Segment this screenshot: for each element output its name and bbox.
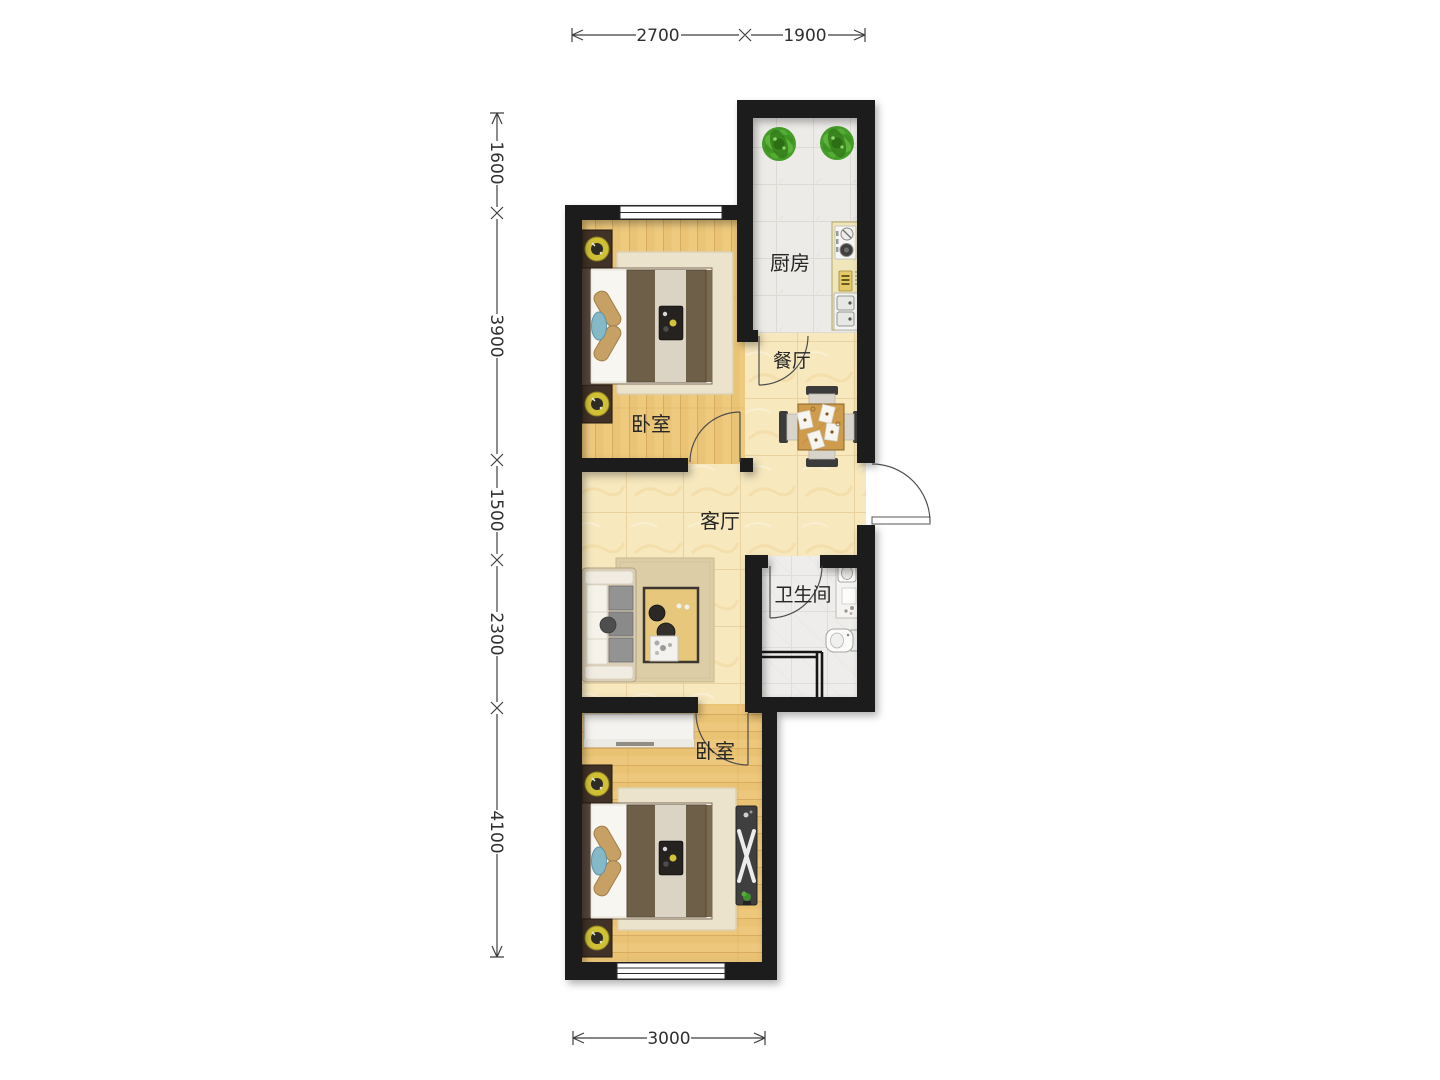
kitchen-sink: [834, 293, 858, 330]
bathroom-vanity: [836, 561, 858, 618]
dimension-label: 4100: [486, 810, 506, 853]
dimension-label: 1500: [486, 488, 506, 531]
room-label-bedroom-south: 卧室: [695, 739, 735, 763]
room-label-living: 客厅: [700, 509, 740, 533]
room-label-bedroom-north: 卧室: [631, 412, 671, 436]
toilet: [826, 629, 858, 652]
dimension-label: 1600: [486, 141, 506, 184]
wall: [565, 458, 688, 472]
window-north: [620, 206, 722, 219]
room-label-bathroom: 卫生间: [774, 584, 831, 606]
room-label-dining: 餐厅: [773, 350, 811, 372]
wall: [745, 697, 875, 712]
bedroom-south-bed: [582, 803, 712, 919]
dimension-label: 1900: [783, 26, 826, 46]
plant: [820, 126, 854, 160]
wall: [820, 555, 875, 568]
wall: [745, 555, 762, 712]
wall: [857, 525, 875, 712]
plant: [762, 127, 796, 161]
wardrobe: [584, 714, 694, 747]
wall: [737, 100, 875, 118]
window-south: [617, 963, 725, 979]
wardrobe-handle: [616, 742, 654, 746]
coffee-table: [644, 588, 698, 662]
dimension-label: 3900: [486, 314, 506, 357]
bedroom-north-bed: [582, 268, 712, 384]
wall: [857, 100, 875, 463]
wall: [565, 205, 582, 980]
bedroom-north-nightstand-top: [582, 230, 612, 268]
entry-door: [872, 464, 930, 524]
bedroom-north-nightstand-bottom: [582, 385, 612, 423]
wall: [737, 330, 758, 342]
dimension-bottom: 3000: [573, 1029, 765, 1049]
bedroom-south-nightstand-bottom: [582, 919, 612, 957]
kitchen-counter: [832, 222, 859, 330]
wall: [737, 100, 753, 342]
dimension-left: 1600 3900 1500 2300 4100: [486, 113, 506, 957]
wall: [565, 697, 698, 713]
dimension-label: 3000: [647, 1029, 690, 1049]
floor-plan-page: 厨房 餐厅 卧室 客厅 卫生间 卧室 2700 1900 1600 3900 1…: [0, 0, 1440, 1080]
sofa: [582, 568, 636, 682]
floor-plan-canvas: 厨房 餐厅 卧室 客厅 卫生间 卧室 2700 1900 1600 3900 1…: [0, 0, 1440, 1080]
dimension-top: 2700 1900: [572, 26, 865, 46]
tv-stand: [736, 806, 757, 905]
sofa-pillow: [600, 617, 616, 633]
dimension-label: 2700: [636, 26, 679, 46]
wall: [748, 697, 762, 713]
room-label-kitchen: 厨房: [770, 251, 810, 275]
dimension-label: 2300: [486, 612, 506, 655]
wall: [762, 712, 777, 980]
bedroom-south-nightstand-top: [582, 765, 612, 803]
stove: [835, 226, 856, 259]
wall: [740, 458, 753, 472]
